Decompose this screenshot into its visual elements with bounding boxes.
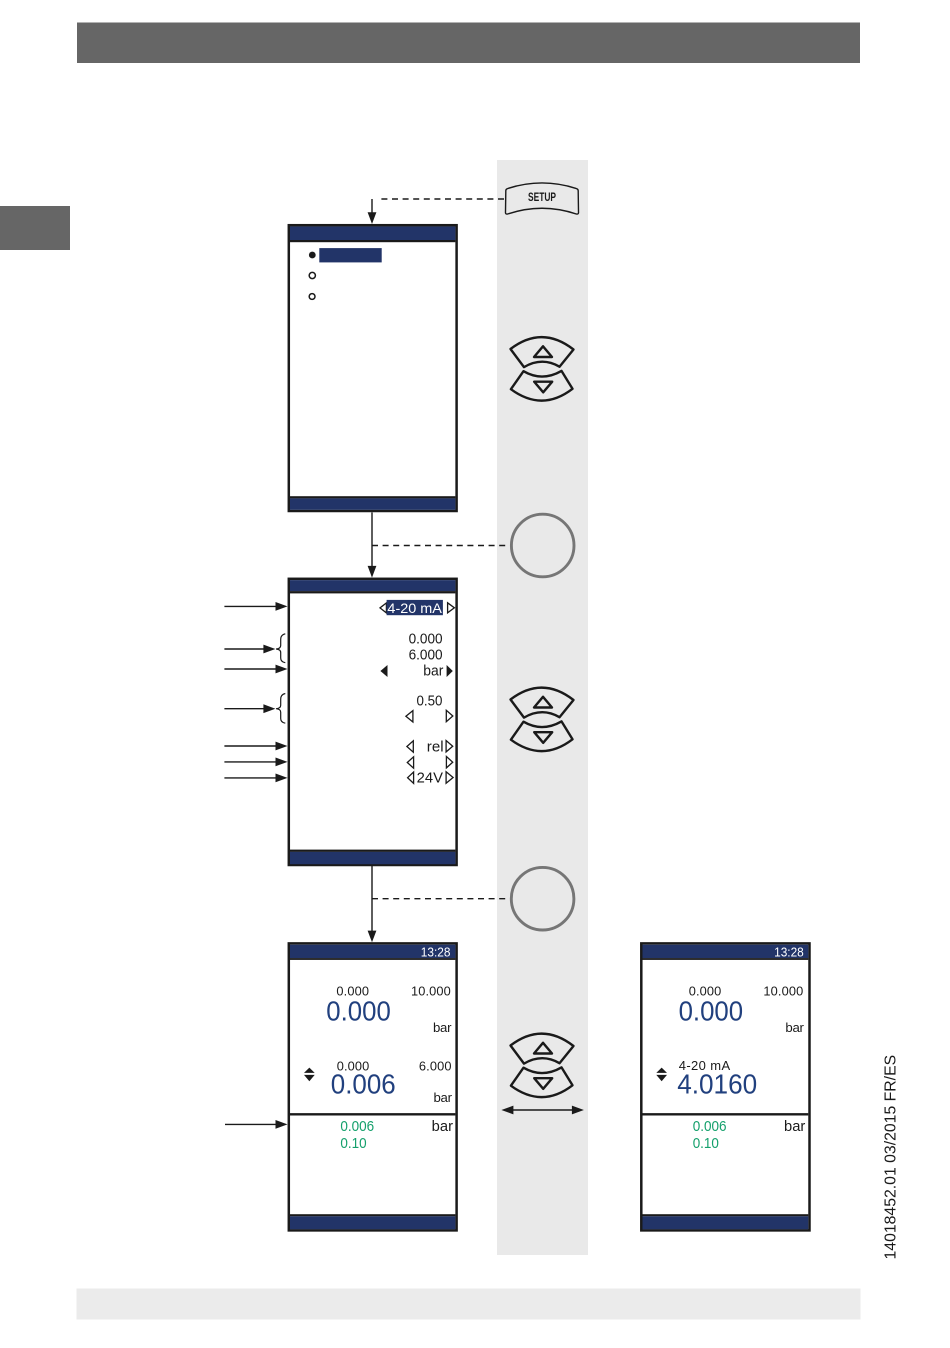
svg-text:bar: bar	[785, 1020, 804, 1035]
svg-text:0.10: 0.10	[693, 1135, 719, 1152]
svg-text:14018452.01 03/2015 FR/ES: 14018452.01 03/2015 FR/ES	[883, 1055, 900, 1260]
svg-text:13:28: 13:28	[774, 944, 804, 959]
svg-text:10.000: 10.000	[763, 984, 803, 999]
svg-text:13:28: 13:28	[421, 944, 451, 959]
svg-text:bar: bar	[784, 1119, 805, 1135]
svg-text:0.000: 0.000	[679, 995, 744, 1026]
svg-text:0.000: 0.000	[326, 995, 391, 1026]
svg-text:0.000: 0.000	[409, 631, 443, 647]
svg-text:rel: rel	[427, 739, 444, 755]
svg-text:10.000: 10.000	[411, 984, 451, 999]
svg-text:4-20 mA: 4-20 mA	[387, 600, 442, 616]
svg-text:6.000: 6.000	[409, 647, 443, 663]
svg-text:bar: bar	[433, 1020, 452, 1035]
svg-text:4.0160: 4.0160	[677, 1069, 757, 1100]
svg-text:0.006: 0.006	[331, 1069, 396, 1100]
svg-text:bar: bar	[432, 1119, 453, 1135]
svg-text:6.000: 6.000	[419, 1059, 452, 1074]
svg-text:bar: bar	[434, 1090, 453, 1105]
svg-text:24V: 24V	[417, 771, 444, 787]
svg-text:0.006: 0.006	[340, 1118, 374, 1135]
svg-text:bar: bar	[423, 663, 443, 679]
svg-text:SETUP: SETUP	[528, 192, 556, 204]
svg-text:0.10: 0.10	[340, 1135, 366, 1152]
svg-text:0.006: 0.006	[693, 1118, 727, 1135]
svg-text:0.50: 0.50	[417, 694, 443, 710]
